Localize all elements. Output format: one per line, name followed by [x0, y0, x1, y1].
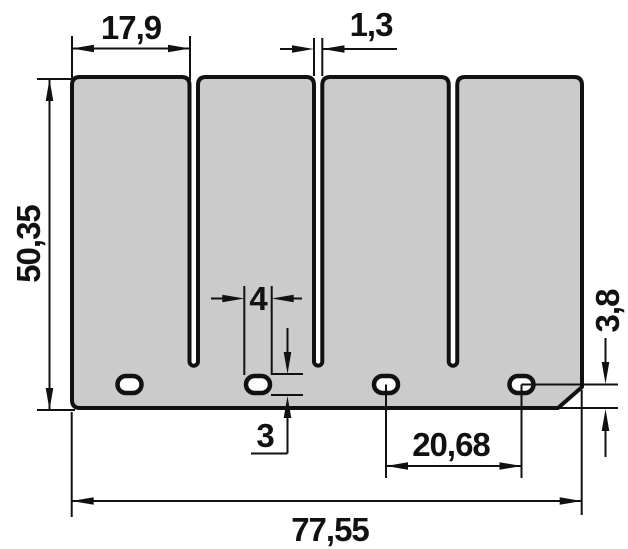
dimension-label: 4 — [249, 280, 268, 317]
arrowhead — [72, 497, 94, 505]
arrowhead — [46, 388, 54, 410]
technical-drawing-canvas: 17,9 1,3 50,35 4 — [0, 0, 628, 549]
plate-outline — [72, 77, 582, 408]
dimension-label: 1,3 — [350, 6, 394, 43]
arrowhead — [560, 497, 582, 505]
arrowhead — [168, 45, 190, 53]
arrowhead — [72, 45, 94, 53]
dim-plate-width: 77,55 — [72, 390, 582, 548]
dimension-label: 77,55 — [291, 511, 369, 548]
mounting-hole-2 — [246, 376, 270, 393]
dim-finger-width: 17,9 — [72, 9, 190, 80]
reed-plate-drawing: 17,9 1,3 50,35 4 — [0, 0, 628, 549]
dimension-label: 3,8 — [589, 289, 626, 333]
dimension-label: 50,35 — [10, 205, 47, 283]
dim-slot-width: 1,3 — [280, 6, 397, 76]
arrowhead — [322, 45, 344, 53]
arrowhead — [602, 409, 610, 431]
part — [72, 77, 582, 408]
arrowhead — [292, 45, 314, 53]
mounting-hole-1 — [118, 376, 142, 393]
arrowhead — [386, 462, 408, 470]
dimension-label: 20,68 — [412, 426, 490, 463]
dimension-label: 3 — [256, 417, 274, 454]
dimension-label: 17,9 — [101, 9, 162, 46]
arrowhead — [46, 79, 54, 101]
arrowhead — [500, 462, 522, 470]
dim-plate-height: 50,35 — [10, 79, 75, 410]
arrowhead — [602, 362, 610, 384]
